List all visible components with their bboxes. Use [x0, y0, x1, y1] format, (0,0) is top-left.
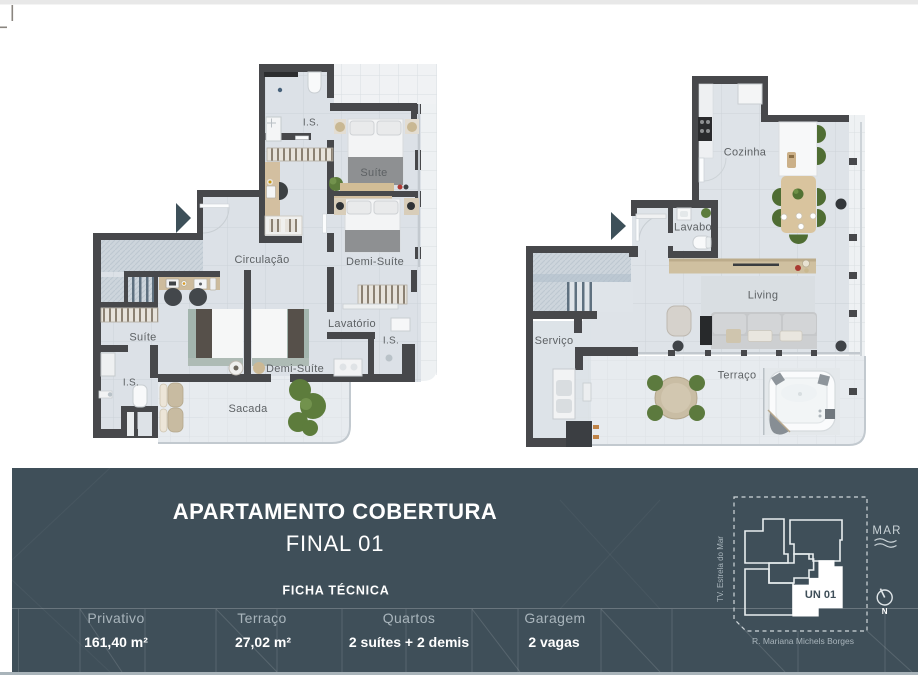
svg-text:2 vagas: 2 vagas: [528, 634, 580, 650]
svg-text:Terraço: Terraço: [237, 610, 286, 626]
svg-text:MAR: MAR: [872, 525, 901, 537]
svg-text:I.S.: I.S.: [383, 336, 399, 347]
svg-text:Quartos: Quartos: [383, 610, 436, 626]
svg-text:Suíte: Suíte: [129, 332, 156, 344]
svg-text:N: N: [882, 607, 888, 616]
svg-text:Cozinha: Cozinha: [724, 147, 767, 159]
svg-text:Sacada: Sacada: [228, 403, 268, 415]
svg-text:FICHA TÉCNICA: FICHA TÉCNICA: [282, 583, 389, 598]
svg-text:R. Mariana Michels Borges: R. Mariana Michels Borges: [752, 636, 854, 646]
svg-text:Lavatório: Lavatório: [328, 318, 376, 330]
svg-text:FINAL 01: FINAL 01: [286, 531, 385, 556]
svg-text:UN 01: UN 01: [805, 589, 836, 601]
svg-text:Serviço: Serviço: [535, 335, 574, 347]
svg-text:Privativo: Privativo: [87, 610, 144, 626]
svg-text:Circulação: Circulação: [235, 254, 290, 266]
svg-text:Suíte: Suíte: [360, 167, 387, 179]
svg-text:Living: Living: [748, 290, 779, 302]
svg-text:TV. Estrela do Mar: TV. Estrela do Mar: [716, 536, 725, 602]
svg-text:I.S.: I.S.: [123, 378, 139, 389]
svg-text:APARTAMENTO COBERTURA: APARTAMENTO COBERTURA: [173, 499, 498, 524]
svg-text:2 suítes + 2 demis: 2 suítes + 2 demis: [349, 634, 469, 650]
svg-text:Demi-Suíte: Demi-Suíte: [266, 363, 324, 375]
svg-text:I.S.: I.S.: [303, 118, 319, 129]
svg-text:Garagem: Garagem: [524, 610, 585, 626]
svg-text:27,02 m²: 27,02 m²: [235, 634, 291, 650]
svg-text:161,40 m²: 161,40 m²: [84, 634, 148, 650]
svg-text:Terraço: Terraço: [718, 370, 757, 382]
svg-text:Demi-Suíte: Demi-Suíte: [346, 256, 404, 268]
svg-text:Lavabo: Lavabo: [674, 222, 712, 234]
